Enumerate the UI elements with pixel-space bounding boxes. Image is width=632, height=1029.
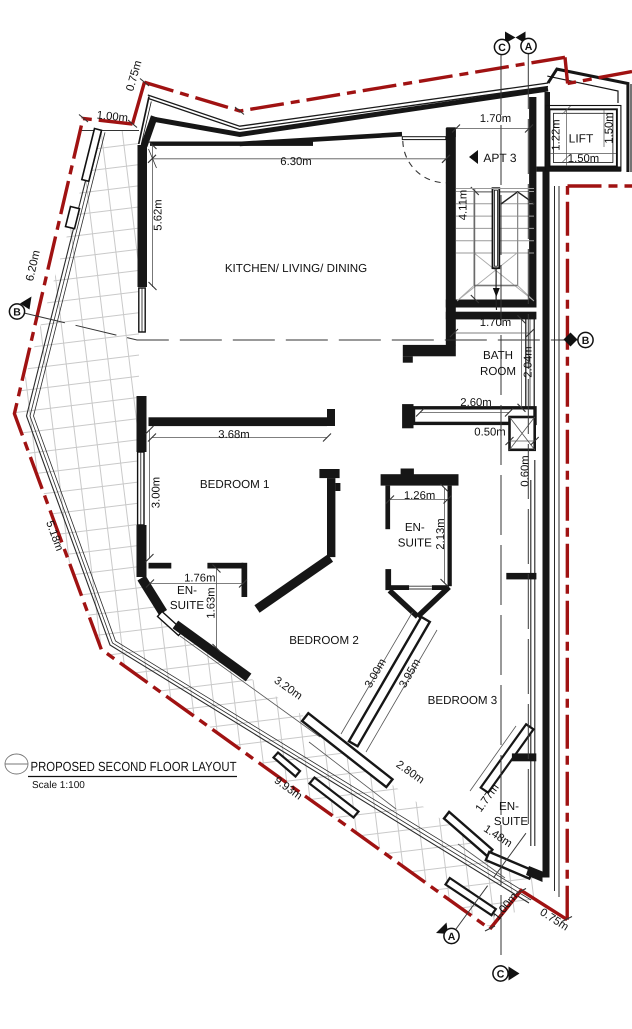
svg-text:EN-: EN- [177, 584, 197, 597]
svg-text:ROOM: ROOM [480, 365, 516, 378]
svg-text:BATH: BATH [483, 349, 513, 362]
svg-text:1.50m: 1.50m [568, 153, 599, 165]
svg-text:BEDROOM 1: BEDROOM 1 [200, 478, 270, 491]
svg-text:C: C [498, 42, 506, 54]
svg-text:5.62m: 5.62m [153, 199, 165, 230]
svg-text:SUITE: SUITE [398, 537, 432, 550]
svg-text:4.11m: 4.11m [458, 190, 470, 221]
svg-text:C: C [497, 968, 505, 980]
svg-text:A: A [448, 931, 456, 943]
svg-text:B: B [582, 335, 590, 347]
svg-text:2.04m: 2.04m [523, 346, 535, 377]
svg-text:2.60m: 2.60m [460, 397, 491, 409]
svg-text:EN-: EN- [405, 521, 425, 534]
svg-text:BEDROOM 3: BEDROOM 3 [428, 694, 498, 707]
svg-text:KITCHEN/ LIVING/ DINING: KITCHEN/ LIVING/ DINING [225, 262, 367, 275]
svg-text:1.76m: 1.76m [184, 573, 215, 585]
svg-text:B: B [13, 306, 21, 318]
svg-text:EN-: EN- [499, 800, 519, 813]
svg-text:Scale 1:100: Scale 1:100 [32, 780, 85, 791]
svg-text:1.63m: 1.63m [205, 587, 217, 618]
svg-text:0.50m: 0.50m [474, 427, 505, 439]
svg-text:LIFT: LIFT [569, 132, 594, 146]
svg-text:SUITE: SUITE [170, 599, 204, 612]
svg-text:3.68m: 3.68m [218, 429, 249, 441]
svg-text:A: A [525, 41, 533, 53]
svg-text:1.50m: 1.50m [604, 112, 616, 143]
svg-text:2.13m: 2.13m [435, 518, 447, 549]
svg-text:1.70m: 1.70m [480, 317, 511, 329]
svg-text:0.60m: 0.60m [520, 455, 532, 486]
svg-text:6.30m: 6.30m [280, 156, 311, 168]
svg-text:3.00m: 3.00m [151, 477, 163, 508]
svg-text:BEDROOM 2: BEDROOM 2 [289, 634, 359, 647]
svg-text:SUITE: SUITE [494, 815, 528, 828]
svg-text:PROPOSED SECOND FLOOR LAYOUT: PROPOSED SECOND FLOOR LAYOUT [31, 759, 237, 774]
svg-text:1.70m: 1.70m [480, 113, 511, 125]
svg-text:APT 3: APT 3 [483, 151, 516, 165]
svg-text:1.26m: 1.26m [404, 490, 435, 502]
svg-text:1.22m: 1.22m [551, 119, 563, 150]
